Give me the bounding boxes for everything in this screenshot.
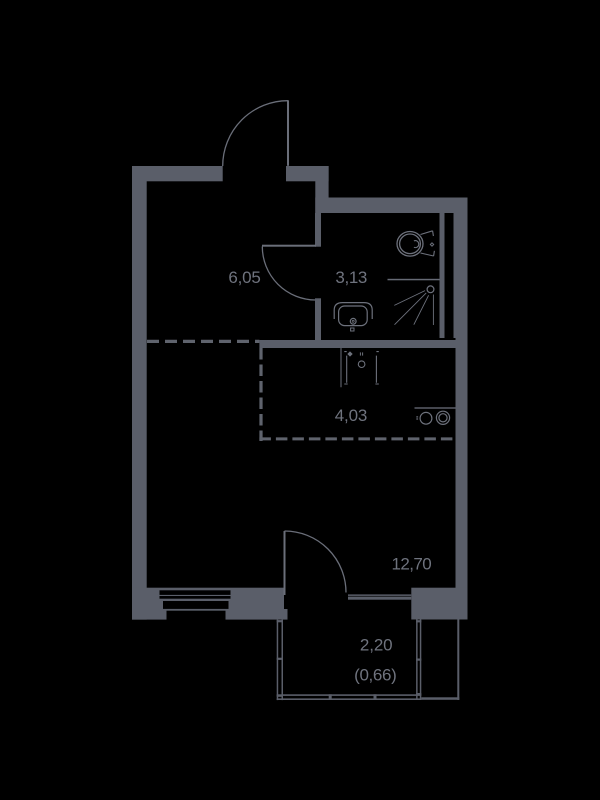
svg-text:6,05: 6,05 — [228, 268, 260, 287]
svg-text:2,20: 2,20 — [360, 635, 393, 654]
svg-text:4,03: 4,03 — [335, 406, 368, 425]
svg-text:(0,66): (0,66) — [354, 665, 396, 684]
svg-text:12,70: 12,70 — [392, 555, 432, 574]
svg-text:3,13: 3,13 — [335, 268, 367, 287]
